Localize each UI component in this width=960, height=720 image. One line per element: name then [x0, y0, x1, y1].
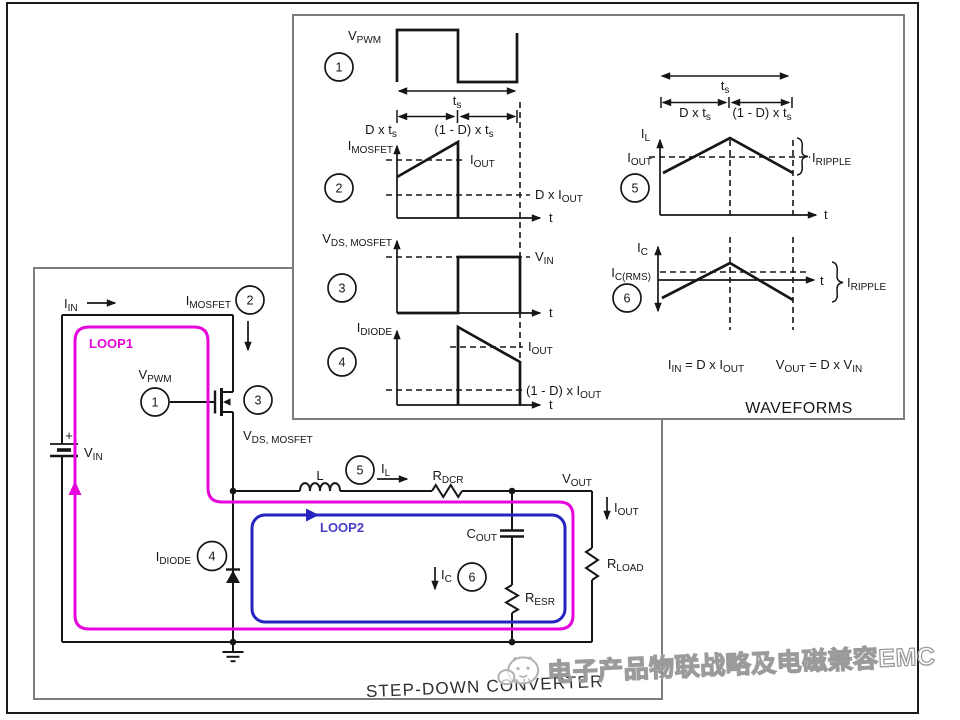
marker-6-number-wave: 6	[624, 292, 631, 306]
label-t-5: t	[824, 207, 828, 222]
label-t-4: t	[549, 397, 553, 412]
waveforms-panel-title: WAVEFORMS	[745, 400, 853, 417]
marker-4-circle: 4	[198, 542, 227, 571]
marker-2-number-wave: 2	[336, 182, 343, 196]
marker-5-number-wave: 5	[632, 182, 639, 196]
marker-3-number-wave: 3	[339, 282, 346, 296]
label-t-6: t	[820, 273, 824, 288]
marker-2-circle: 2	[236, 286, 264, 314]
screenshot-root: +	[0, 0, 960, 720]
label-t-3: t	[549, 305, 553, 320]
marker-2-number: 2	[247, 294, 254, 308]
label-loop2: LOOP2	[320, 520, 364, 535]
marker-4-number-wave: 4	[339, 356, 346, 370]
marker-5-number: 5	[357, 464, 364, 478]
marker-4-number: 4	[209, 550, 216, 564]
marker-6-circle: 6	[458, 563, 486, 591]
marker-1-circle: 1	[141, 388, 169, 416]
marker-5-circle: 5	[346, 456, 374, 484]
battery-plus-sign: +	[65, 428, 73, 443]
marker-6-number: 6	[469, 571, 476, 585]
label-t-2: t	[549, 210, 553, 225]
marker-3-circle: 3	[244, 386, 272, 414]
watermark-logo-icon	[495, 653, 543, 693]
marker-1-number-wave: 1	[336, 61, 343, 75]
label-inductor: L	[316, 468, 323, 483]
marker-3-number: 3	[255, 394, 262, 408]
marker-1-number: 1	[152, 396, 159, 410]
label-loop1: LOOP1	[89, 336, 133, 351]
waveforms-panel: VPWM 1 ts D x ts (1 - D) x ts IMOSFET 2 …	[292, 14, 905, 420]
